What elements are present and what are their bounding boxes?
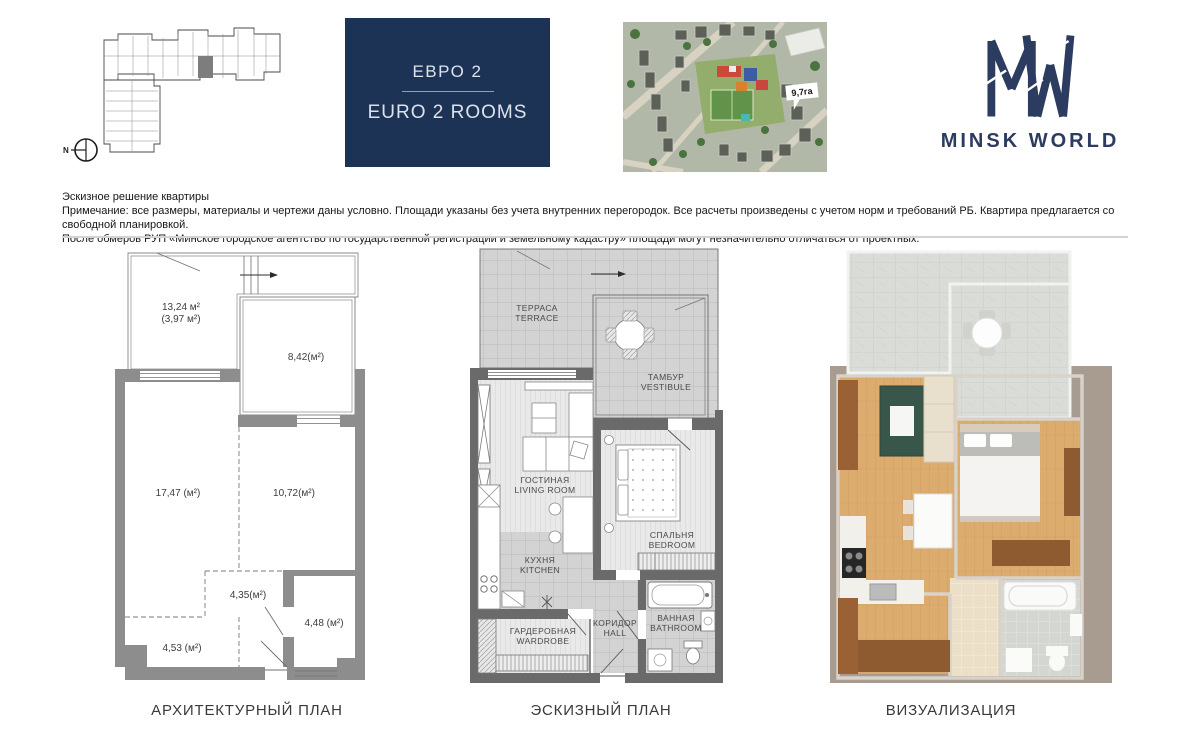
visualization-render xyxy=(830,248,1112,690)
kitchen-sink xyxy=(870,584,896,600)
compass-north-label: N xyxy=(63,146,69,155)
area-hall: 4,35(м²) xyxy=(230,590,266,601)
label-bedroom-ru: СПАЛЬНЯ xyxy=(650,530,694,540)
label-wardrobe-en: WARDROBE xyxy=(517,636,570,646)
bed-headboard xyxy=(960,424,1040,432)
unit-card-divider xyxy=(402,91,494,92)
label-bedroom-en: BEDROOM xyxy=(649,540,696,550)
washing-machine xyxy=(1006,648,1032,672)
dining-chair xyxy=(903,500,913,514)
area-wardrobe: 4,53 (м²) xyxy=(162,643,201,654)
brand-name: MINSK WORLD xyxy=(941,130,1120,153)
unit-type-ru: ЕВРО 2 xyxy=(412,62,482,82)
bathroom-sink xyxy=(1070,614,1082,636)
label-vestibule-en: VESTIBULE xyxy=(641,382,691,392)
label-wardrobe-ru: ГАРДЕРОБНАЯ xyxy=(510,626,576,636)
floorplan-sheet: N ЕВРО 2 EURO 2 ROOMS xyxy=(0,0,1188,740)
disclaimer-line-3: После обмеров РУП «Минское городское аге… xyxy=(62,232,1132,246)
building-key-plan: N xyxy=(58,16,288,176)
area-glazed-room: 8,42(м²) xyxy=(288,352,324,363)
label-vestibule-ru: ТАМБУР xyxy=(648,372,685,382)
architectural-plan: 13,24 м² (3,97 м²) 8,42(м²) 17,47 (м²) 1… xyxy=(112,247,382,697)
unit-type-en: EURO 2 ROOMS xyxy=(368,102,528,124)
label-kitchen-ru: КУХНЯ xyxy=(525,555,555,565)
label-kitchen-en: KITCHEN xyxy=(520,565,560,575)
label-bathroom-en: BATHROOM xyxy=(650,623,702,633)
wardrobe-closet xyxy=(858,640,950,672)
hall-floor xyxy=(950,578,1002,676)
area-bedroom: 10,72(м²) xyxy=(273,488,315,499)
caption-sketch-plan: ЭСКИЗНЫЙ ПЛАН xyxy=(470,702,732,724)
area-living-room: 17,47 (м²) xyxy=(156,488,201,499)
label-hall-en: HALL xyxy=(604,628,627,638)
mw-monogram-icon xyxy=(984,28,1076,124)
dashed-partitions xyxy=(125,427,283,667)
label-living-ru: ГОСТИНАЯ xyxy=(520,475,569,485)
dining-table xyxy=(914,494,952,548)
disclaimer-line-1: Эскизное решение квартиры xyxy=(62,190,1132,204)
masterplan-aerial-image: 9,7га xyxy=(623,22,827,172)
label-terrace-en: TERRACE xyxy=(515,313,558,323)
dresser xyxy=(992,540,1070,566)
label-terrace-ru: ТЕРРАСА xyxy=(516,303,558,313)
load-bearing-walls xyxy=(115,369,365,680)
caption-visualization: ВИЗУАЛИЗАЦИЯ xyxy=(810,702,1092,724)
stove xyxy=(842,548,866,578)
caption-architectural-plan: АРХИТЕКТУРНЫЙ ПЛАН xyxy=(112,702,382,724)
label-living-en: LIVING ROOM xyxy=(514,485,575,495)
coffee-table xyxy=(890,406,914,436)
bed-bench xyxy=(960,516,1040,522)
unit-type-card: ЕВРО 2 EURO 2 ROOMS xyxy=(345,18,550,167)
tv-cabinet xyxy=(838,380,858,470)
dining-chair xyxy=(903,526,913,540)
wardrobe-cabinet-left xyxy=(838,598,858,674)
toilet-bowl xyxy=(1049,653,1065,671)
header-divider-line xyxy=(62,236,1128,238)
sofa xyxy=(924,376,954,462)
sketch-plan: ТЕРРАСА TERRACE ТАМБУР VESTIBULE ГОСТИНА… xyxy=(470,247,732,699)
brand-logo: MINSK WORLD xyxy=(930,28,1130,166)
highlighted-unit xyxy=(198,56,213,78)
north-compass-icon: N xyxy=(63,139,97,161)
area-bathroom: 4,48 (м²) xyxy=(304,618,343,629)
bedroom-wardrobe xyxy=(1064,448,1080,516)
area-terrace-reduced: (3,97 м²) xyxy=(161,314,200,325)
label-hall-ru: КОРИДОР xyxy=(593,618,637,628)
disclaimer-line-2: Примечание: все размеры, материалы и чер… xyxy=(62,204,1132,232)
area-terrace-total: 13,24 м² xyxy=(162,302,201,313)
label-bathroom-ru: ВАННАЯ xyxy=(657,613,695,623)
vestibule-glass-room xyxy=(950,284,1070,418)
